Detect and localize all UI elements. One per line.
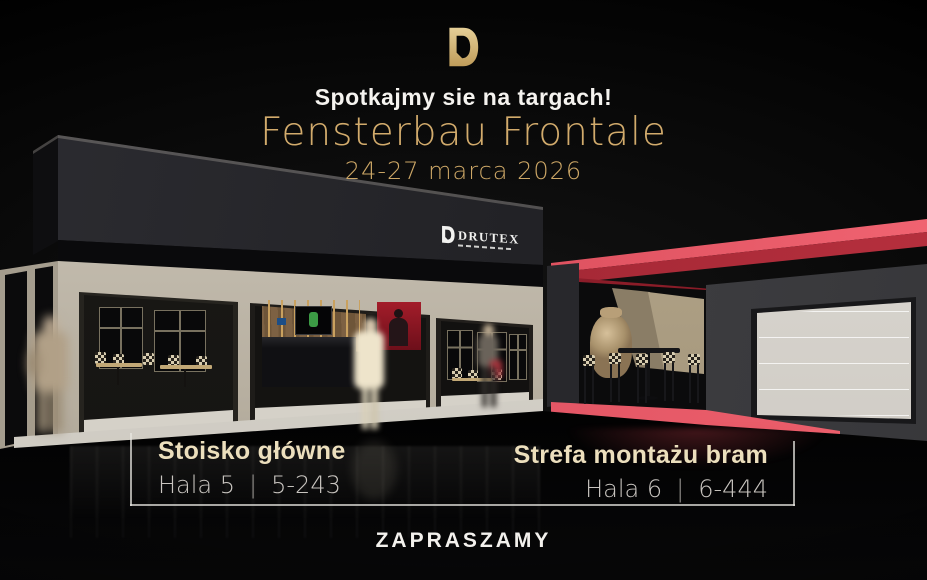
kicker-text: Spotkajmy sie na targach!	[0, 84, 927, 111]
label-bracket-horizontal	[130, 504, 795, 506]
hall-name: Hala 5	[158, 471, 235, 499]
promo-banner: DRUTEX	[0, 0, 927, 580]
label-bracket-right	[793, 441, 795, 506]
gate-zone-location: Hala 6|6-444	[514, 475, 768, 503]
separator: |	[235, 471, 271, 499]
invitation-text: ZAPRASZAMY	[0, 529, 927, 553]
hall-name: Hala 6	[585, 475, 662, 503]
drutex-d-logo	[447, 27, 479, 67]
stand-number: 6-444	[698, 475, 768, 503]
event-dates: 24-27 marca 2026	[0, 157, 927, 185]
label-bracket-left	[130, 433, 132, 506]
gate-zone-label: Strefa montażu bram Hala 6|6-444	[514, 441, 768, 503]
separator: |	[662, 475, 698, 503]
event-title: Fensterbau Frontale	[0, 110, 927, 155]
stand-number: 5-243	[271, 471, 341, 499]
main-stand-title: Stoisko główne	[158, 437, 346, 466]
gate-zone-title: Strefa montażu bram	[514, 441, 768, 470]
main-stand-location: Hala 5|5-243	[158, 471, 346, 499]
main-stand-label: Stoisko główne Hala 5|5-243	[158, 437, 346, 499]
